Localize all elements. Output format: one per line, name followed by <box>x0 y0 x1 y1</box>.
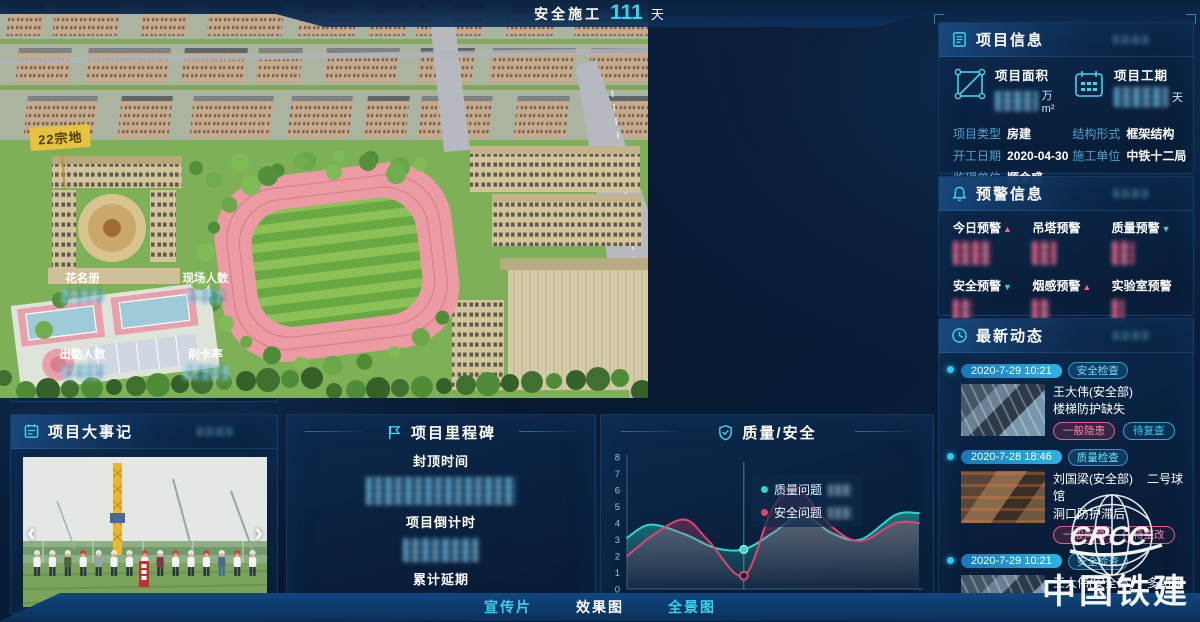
corner-bracket <box>1186 14 1196 24</box>
countdown-blur <box>403 538 479 562</box>
events-panel: 项目大事记 ‹ › <box>10 414 278 614</box>
quality-title: 质量/安全 <box>742 422 816 443</box>
document-icon <box>951 31 968 48</box>
attendance-value-blur <box>62 365 104 380</box>
project-duration-stat: 项目工期 天 <box>1072 65 1183 115</box>
warning-crane: 吊塔预警 <box>1032 219 1107 265</box>
news-item[interactable]: 2020-7-29 10:21 安全检查 王大伟(安全部) 楼梯防护缺失 一般隐… <box>939 362 1193 440</box>
chart-tooltip: 质量问题 安全问题 <box>751 475 862 527</box>
photo-next-arrow[interactable]: › <box>254 519 263 545</box>
deco-line <box>305 431 364 432</box>
news-tag: 质量检查 <box>1068 449 1128 466</box>
field-start-date: 开工日期2020-04-30 <box>953 147 1068 164</box>
site-plot-label: 22宗地 <box>29 124 91 151</box>
tooltip-safety-row: 安全问题 <box>761 504 852 521</box>
project-info-panel: 项目信息 项目面积 万m² 项目工期 天 项目类型房建 结构形式框架结构 开工日… <box>938 22 1194 174</box>
milestone-header: 项目里程碑 <box>287 415 595 449</box>
clock-icon <box>951 327 968 344</box>
quality-header: 质量/安全 <box>601 415 933 449</box>
project-area-stat: 项目面积 万m² <box>953 65 1062 115</box>
onsite-value-blur <box>187 289 225 304</box>
svg-text:1: 1 <box>615 568 620 579</box>
news-header: 最新动态 <box>939 319 1193 353</box>
field-project-type: 项目类型房建 <box>953 125 1068 142</box>
swipe-rate-value-blur <box>183 365 229 380</box>
crane-warning-blur <box>1032 241 1056 265</box>
project-info-title: 项目信息 <box>976 29 1044 50</box>
svg-text:8: 8 <box>615 453 620 464</box>
crcc-logo: CRCC 中国铁建 <box>1040 489 1198 617</box>
corner-bracket <box>934 14 944 24</box>
milestone-title: 项目里程碑 <box>411 422 496 443</box>
ring-swipe-rate[interactable]: 刷卡率 <box>174 331 238 395</box>
status-badge: 待复查 <box>1123 422 1175 440</box>
events-photo[interactable]: ‹ › <box>23 457 267 607</box>
deco-line <box>855 431 914 432</box>
area-value-blur <box>995 91 1038 111</box>
svg-text:3: 3 <box>615 535 620 546</box>
news-tag: 安全检查 <box>1068 362 1128 379</box>
topping-time-blur <box>366 477 516 505</box>
safety-series-dot <box>761 509 768 516</box>
tooltip-quality-row: 质量问题 <box>761 481 852 498</box>
hazard-badge: 一般隐患 <box>1053 422 1115 440</box>
warning-today: 今日预警▲ <box>953 219 1028 265</box>
roster-value-blur <box>62 289 104 304</box>
news-photo[interactable] <box>961 384 1045 436</box>
deco-line <box>621 431 680 432</box>
header-blur-chip <box>197 427 233 436</box>
topping-time-label: 封顶时间 <box>413 451 469 470</box>
svg-text:5: 5 <box>615 502 620 513</box>
delay-label: 累计延期 <box>413 569 469 588</box>
ring-roster[interactable]: 花名册 <box>51 255 115 319</box>
field-structure: 结构形式框架结构 <box>1072 125 1186 142</box>
countdown-label: 项目倒计时 <box>406 512 476 531</box>
field-contractor: 施工单位中铁十二局 <box>1072 147 1186 164</box>
header-blur-chip <box>1113 189 1149 198</box>
warnings-header: 预警信息 <box>939 177 1193 211</box>
news-time: 2020-7-28 18:46 <box>961 450 1062 464</box>
header-blur-chip <box>1113 35 1149 44</box>
shield-check-icon <box>717 424 734 441</box>
quality-warning-blur <box>1112 241 1134 265</box>
project-info-header: 项目信息 <box>939 23 1193 57</box>
news-time: 2020-7-29 10:21 <box>961 364 1062 378</box>
safety-days-label: 安全施工 <box>534 4 602 24</box>
warning-lab: 实验室预警 <box>1112 277 1187 323</box>
duration-value-blur <box>1114 87 1168 107</box>
tooltip-value-blur <box>828 507 852 519</box>
warning-safety: 安全预警▼ <box>953 277 1028 323</box>
milestone-panel: 项目里程碑 封顶时间 项目倒计时 累计延期 <box>286 414 596 614</box>
timeline-dot <box>947 453 954 460</box>
svg-text:2: 2 <box>615 552 620 563</box>
ring-onsite[interactable]: 现场人数 <box>174 255 238 319</box>
svg-text:7: 7 <box>615 469 620 480</box>
quality-chart[interactable]: 01234567810-0610-0710-0810-0910-1010-11 … <box>601 447 933 616</box>
warnings-title: 预警信息 <box>976 183 1044 204</box>
events-header: 项目大事记 <box>11 415 277 449</box>
quality-series-dot <box>761 486 768 493</box>
warning-smoke: 烟感预警▲ <box>1032 277 1107 323</box>
quality-safety-panel: 质量/安全 01234567810-0610-0710-0810-0910-10… <box>600 414 934 614</box>
header-blur-chip <box>1113 331 1149 340</box>
warning-quality: 质量预警▼ <box>1112 219 1187 265</box>
timeline-dot <box>947 366 954 373</box>
calendar-note-icon <box>23 423 40 440</box>
warnings-panel: 预警信息 今日预警▲ 吊塔预警 质量预警▼ 安全预警▼ 烟感预警▲ 实验室预警 <box>938 176 1194 316</box>
ring-attendance[interactable]: 出勤人数 <box>51 331 115 395</box>
crcc-name: 中国铁建 <box>1042 573 1190 611</box>
today-warning-blur <box>953 241 991 265</box>
photo-prev-arrow[interactable]: ‹ <box>27 519 36 545</box>
news-photo[interactable] <box>961 471 1045 523</box>
area-measure-icon <box>953 67 987 101</box>
events-title: 项目大事记 <box>48 421 133 442</box>
calendar-icon <box>1072 67 1106 101</box>
news-title: 最新动态 <box>976 325 1044 346</box>
flag-icon <box>386 424 403 441</box>
svg-text:6: 6 <box>615 486 620 497</box>
svg-text:4: 4 <box>615 519 620 530</box>
bell-icon <box>951 185 968 202</box>
crcc-acronym: CRCC <box>1067 520 1151 551</box>
tooltip-value-blur <box>828 484 852 496</box>
deco-line <box>519 431 578 432</box>
safety-days-value: 111 <box>610 2 643 23</box>
timeline-dot <box>947 557 954 564</box>
